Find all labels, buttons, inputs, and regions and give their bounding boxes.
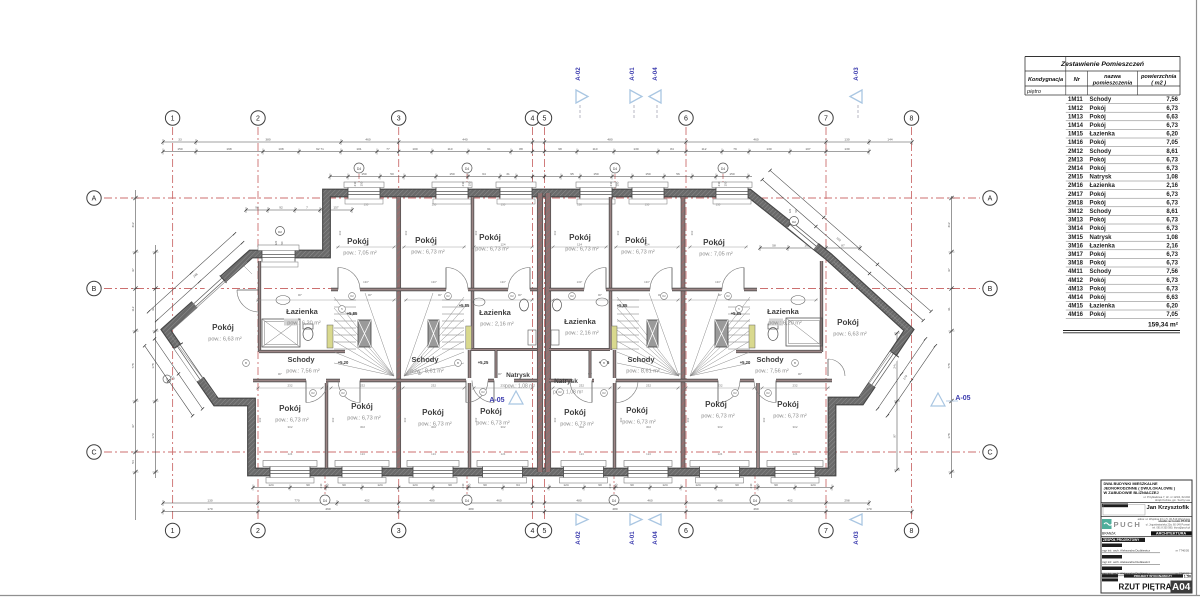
svg-text:150: 150 — [729, 172, 734, 176]
svg-text:150: 150 — [364, 203, 369, 207]
svg-text:90°: 90° — [598, 293, 602, 297]
svg-text:5: 5 — [543, 115, 547, 122]
svg-text:D2: D2 — [510, 294, 514, 298]
svg-text:A-05: A-05 — [489, 397, 504, 404]
svg-text:90°: 90° — [498, 372, 502, 376]
svg-text:Pokój: Pokój — [564, 408, 586, 417]
svg-text:144: 144 — [887, 137, 892, 141]
svg-text:D2: D2 — [558, 390, 562, 394]
svg-text:312: 312 — [131, 222, 135, 227]
svg-text:PUCH: PUCH — [1114, 520, 1142, 529]
svg-text:64: 64 — [482, 172, 486, 176]
svg-text:150: 150 — [593, 172, 598, 176]
svg-text:232: 232 — [579, 383, 584, 387]
svg-text:232: 232 — [287, 383, 292, 387]
svg-text:302: 302 — [553, 230, 557, 235]
svg-text:6,63: 6,63 — [1166, 295, 1178, 301]
svg-text:460: 460 — [496, 498, 501, 502]
svg-text:198: 198 — [226, 147, 231, 151]
svg-text:90°: 90° — [718, 293, 722, 297]
svg-text:6,73: 6,73 — [1166, 278, 1178, 284]
svg-text:Łazienka: Łazienka — [564, 317, 597, 326]
svg-text:778: 778 — [131, 363, 135, 368]
svg-text:90: 90 — [342, 483, 346, 487]
svg-text:Pokój: Pokój — [1090, 123, 1107, 129]
svg-text:Schody: Schody — [1090, 149, 1112, 155]
svg-text:402: 402 — [364, 498, 369, 502]
svg-text:Pokój: Pokój — [351, 402, 373, 411]
svg-text:380: 380 — [265, 137, 270, 141]
svg-text:Pokój: Pokój — [626, 406, 648, 415]
svg-text:pow.: 6,73 m²: pow.: 6,73 m² — [773, 414, 807, 420]
svg-text:150: 150 — [615, 483, 619, 488]
svg-text:77: 77 — [386, 147, 390, 151]
svg-text:6,73: 6,73 — [1166, 157, 1178, 163]
svg-text:B: B — [457, 361, 459, 365]
svg-text:6,73: 6,73 — [1166, 226, 1178, 232]
svg-text:A-04: A-04 — [652, 531, 659, 545]
svg-text:D4: D4 — [753, 499, 757, 503]
svg-text:7: 7 — [306, 205, 308, 209]
svg-text:Schody: Schody — [1090, 97, 1112, 103]
svg-text:BRANŻA:: BRANŻA: — [1102, 531, 1116, 536]
svg-text:98: 98 — [558, 147, 562, 151]
svg-text:130: 130 — [766, 147, 771, 151]
svg-text:6,20: 6,20 — [1166, 304, 1178, 310]
svg-text:+5,25: +5,25 — [478, 360, 489, 365]
svg-text:178: 178 — [151, 363, 155, 368]
svg-text:150: 150 — [449, 172, 454, 176]
svg-text:Łazienka: Łazienka — [479, 308, 512, 317]
svg-text:98: 98 — [255, 205, 259, 209]
svg-text:124: 124 — [288, 452, 293, 456]
svg-text:124: 124 — [268, 483, 273, 487]
svg-text:3: 3 — [397, 528, 401, 535]
svg-text:90°: 90° — [518, 293, 522, 297]
svg-text:480: 480 — [612, 507, 617, 511]
svg-text:Natrysk: Natrysk — [1090, 235, 1113, 241]
svg-text:90: 90 — [598, 483, 602, 487]
svg-text:D2: D2 — [350, 294, 354, 298]
svg-text:159,34 m²: 159,34 m² — [1148, 322, 1179, 329]
svg-text:pow.: 6,73 m²: pow.: 6,73 m² — [565, 247, 599, 253]
svg-text:1M11: 1M11 — [1068, 97, 1083, 103]
svg-text:pow.: 6,20 m²: pow.: 6,20 m² — [768, 321, 802, 327]
svg-text:170: 170 — [207, 507, 212, 511]
svg-text:Pokój: Pokój — [705, 400, 727, 409]
svg-text:460: 460 — [365, 137, 370, 141]
svg-text:150: 150 — [645, 203, 650, 207]
svg-text:7,56: 7,56 — [1166, 269, 1178, 275]
svg-text:pow.: 6,73 m²: pow.: 6,73 m² — [418, 422, 452, 428]
svg-text:Pokój: Pokój — [569, 233, 591, 242]
svg-text:Pokój: Pokój — [422, 408, 444, 417]
svg-text:pomieszczenia: pomieszczenia — [1092, 81, 1132, 87]
svg-text:3M15: 3M15 — [1068, 235, 1084, 241]
svg-text:92: 92 — [279, 205, 283, 209]
svg-text:210: 210 — [353, 181, 357, 186]
svg-text:Kondygnacja: Kondygnacja — [1028, 77, 1063, 83]
svg-text:3M18: 3M18 — [1068, 261, 1084, 267]
svg-text:97: 97 — [131, 424, 135, 428]
svg-text:pow.: 2,16 m²: pow.: 2,16 m² — [565, 331, 599, 337]
svg-text:92 71: 92 71 — [316, 147, 324, 151]
svg-text:1M16: 1M16 — [1068, 140, 1084, 146]
svg-text:D2: D2 — [341, 391, 345, 395]
svg-text:90°: 90° — [438, 293, 442, 297]
svg-text:A-01: A-01 — [629, 67, 636, 81]
svg-text:130°: 130° — [644, 280, 650, 284]
svg-text:232: 232 — [431, 383, 436, 387]
svg-text:Pokój: Pokój — [1090, 252, 1107, 258]
svg-text:7: 7 — [824, 115, 828, 122]
svg-text:210: 210 — [717, 181, 721, 186]
svg-text:+5,85: +5,85 — [617, 303, 628, 308]
svg-text:150: 150 — [616, 181, 620, 186]
svg-text:232: 232 — [792, 383, 797, 387]
svg-text:90°: 90° — [278, 372, 282, 376]
svg-text:232: 232 — [646, 383, 651, 387]
svg-text:6,73: 6,73 — [1166, 286, 1178, 292]
svg-text:D2: D2 — [570, 294, 574, 298]
svg-text:Schody: Schody — [287, 355, 315, 364]
svg-text:4: 4 — [531, 115, 535, 122]
svg-text:2M18: 2M18 — [1068, 200, 1084, 206]
svg-text:B: B — [603, 361, 605, 365]
svg-text:C: C — [91, 449, 96, 456]
svg-text:pow.: 6,63 m²: pow.: 6,63 m² — [208, 337, 242, 343]
svg-text:3M12: 3M12 — [1068, 209, 1084, 215]
svg-text:Jan Krzysztofik: Jan Krzysztofik — [1146, 505, 1189, 511]
svg-text:Natrysk: Natrysk — [1090, 175, 1113, 181]
svg-text:124: 124 — [646, 452, 651, 456]
svg-text:97: 97 — [892, 434, 896, 438]
svg-text:124: 124 — [718, 452, 723, 456]
svg-text:mgr inż. arch. Aleksandra Dudk: mgr inż. arch. Aleksandra Dudkiewicz — [1102, 548, 1151, 552]
svg-text:D2: D2 — [733, 391, 737, 395]
svg-text:90°: 90° — [678, 372, 682, 376]
svg-text:302: 302 — [360, 425, 365, 429]
svg-text:D4: D4 — [465, 167, 469, 171]
svg-text:480: 480 — [607, 137, 612, 141]
svg-text:7,56: 7,56 — [1166, 97, 1178, 103]
svg-text:2: 2 — [256, 528, 260, 535]
svg-text:Pokój: Pokój — [1090, 166, 1107, 172]
svg-text:124: 124 — [501, 452, 506, 456]
svg-text:+5,85: +5,85 — [347, 311, 358, 316]
svg-text:130: 130 — [844, 147, 849, 151]
svg-text:302: 302 — [287, 425, 292, 429]
svg-text:studio acronim PUCH: studio acronim PUCH — [1158, 519, 1191, 523]
svg-text:210: 210 — [749, 483, 753, 488]
svg-text:2M15: 2M15 — [1068, 175, 1084, 181]
svg-text:4M15: 4M15 — [1068, 304, 1084, 310]
svg-text:1,08: 1,08 — [1166, 175, 1178, 181]
svg-text:A: A — [92, 195, 97, 202]
svg-text:90°: 90° — [798, 372, 802, 376]
svg-text:110: 110 — [593, 147, 598, 151]
svg-text:6,73: 6,73 — [1166, 218, 1178, 224]
svg-text:90: 90 — [448, 483, 452, 487]
svg-text:95: 95 — [570, 172, 574, 176]
svg-text:302: 302 — [474, 230, 478, 235]
svg-text:302: 302 — [717, 425, 722, 429]
svg-text:A-03: A-03 — [853, 531, 860, 545]
svg-text:3M13: 3M13 — [1068, 218, 1084, 224]
svg-text:2,16: 2,16 — [1166, 243, 1178, 249]
svg-text:Łazienka: Łazienka — [1090, 304, 1116, 310]
svg-text:Pokój: Pokój — [212, 323, 234, 332]
svg-text:124: 124 — [793, 452, 798, 456]
svg-text:Pokój: Pokój — [279, 404, 301, 413]
svg-text:4: 4 — [531, 528, 535, 535]
svg-text:Schody: Schody — [756, 355, 784, 364]
svg-text:130: 130 — [633, 147, 638, 151]
svg-text:3: 3 — [397, 115, 401, 122]
svg-text:124: 124 — [695, 483, 700, 487]
svg-text:A: A — [988, 195, 993, 202]
svg-text:130°: 130° — [363, 280, 369, 284]
svg-text:56: 56 — [676, 172, 680, 176]
svg-text:440: 440 — [462, 137, 467, 141]
svg-text:2: 2 — [256, 115, 260, 122]
svg-text:5: 5 — [543, 528, 547, 535]
svg-text:130°: 130° — [715, 280, 721, 284]
svg-text:mgr inż. arch. Aleksandra Dudk: mgr inż. arch. Aleksandra Dudkiewicz — [1102, 560, 1151, 564]
svg-text:A-03: A-03 — [853, 67, 860, 81]
svg-text:2M14: 2M14 — [1068, 166, 1084, 172]
svg-text:1M13: 1M13 — [1068, 114, 1084, 120]
svg-text:D4: D4 — [721, 167, 725, 171]
svg-text:298: 298 — [844, 498, 849, 502]
svg-text:1,08: 1,08 — [1166, 235, 1178, 241]
svg-text:90: 90 — [483, 483, 487, 487]
svg-text:79: 79 — [733, 147, 737, 151]
svg-text:124: 124 — [563, 483, 568, 487]
svg-text:1M14: 1M14 — [1068, 123, 1084, 129]
svg-text:D4: D4 — [465, 499, 469, 503]
svg-text:210: 210 — [461, 483, 465, 488]
svg-text:460: 460 — [753, 507, 758, 511]
svg-text:150: 150 — [577, 203, 582, 207]
svg-text:302: 302 — [403, 417, 407, 422]
svg-text:91: 91 — [947, 307, 951, 311]
svg-text:124: 124 — [360, 452, 365, 456]
svg-text:6,73: 6,73 — [1166, 261, 1178, 267]
svg-text:112: 112 — [131, 306, 135, 311]
svg-text:460: 460 — [753, 137, 758, 141]
svg-text:6: 6 — [684, 115, 688, 122]
svg-text:pow.: 8,61 m²: pow.: 8,61 m² — [626, 369, 660, 375]
svg-text:2M17: 2M17 — [1068, 192, 1084, 198]
svg-text:130: 130 — [207, 498, 212, 502]
svg-text:powierzchnia: powierzchnia — [1140, 74, 1176, 80]
svg-text:302: 302 — [686, 417, 690, 422]
svg-text:480: 480 — [468, 507, 473, 511]
svg-text:107: 107 — [805, 147, 810, 151]
svg-text:B: B — [245, 361, 247, 365]
svg-text:100: 100 — [412, 147, 417, 151]
svg-text:pow.: 6,73 m²: pow.: 6,73 m² — [622, 420, 656, 426]
svg-text:3M16: 3M16 — [1068, 243, 1084, 249]
svg-text:Natrysk: Natrysk — [554, 378, 578, 385]
svg-text:D2: D2 — [446, 294, 450, 298]
svg-text:Pokój: Pokój — [625, 236, 647, 245]
svg-text:8,61: 8,61 — [1166, 209, 1178, 215]
svg-text:108: 108 — [278, 147, 283, 151]
svg-text:90°: 90° — [588, 372, 592, 376]
svg-text:D2: D2 — [726, 294, 730, 298]
svg-text:ZESPÓŁ PROJEKTOWY: ZESPÓŁ PROJEKTOWY — [1103, 537, 1140, 542]
svg-text:Pokój: Pokój — [1090, 140, 1107, 146]
svg-text:Zestawienie Pomieszczeń: Zestawienie Pomieszczeń — [1060, 61, 1144, 68]
svg-text:770: 770 — [294, 498, 299, 502]
svg-text:302: 302 — [690, 230, 694, 235]
svg-text:130°: 130° — [500, 280, 506, 284]
svg-text:pow.: 6,63 m²: pow.: 6,63 m² — [833, 332, 867, 338]
svg-text:Pokój: Pokój — [1090, 286, 1107, 292]
svg-text:pow.: 7,56 m²: pow.: 7,56 m² — [755, 369, 789, 375]
svg-text:302: 302 — [331, 417, 335, 422]
svg-text:Schody: Schody — [1090, 269, 1112, 275]
svg-text:pow.: 7,05 m²: pow.: 7,05 m² — [699, 252, 733, 258]
svg-text:54: 54 — [131, 460, 135, 464]
svg-text:4M12: 4M12 — [1068, 278, 1084, 284]
svg-text:124: 124 — [431, 452, 436, 456]
svg-text:1M12: 1M12 — [1068, 106, 1084, 112]
svg-text:W ZABUDOWIE BLIŹNIACZEJ: W ZABUDOWIE BLIŹNIACZEJ — [1104, 490, 1159, 495]
svg-text:2M13: 2M13 — [1068, 157, 1084, 163]
svg-text:Pokój: Pokój — [1090, 218, 1107, 224]
svg-text:B: B — [794, 361, 796, 365]
svg-text:97: 97 — [131, 268, 135, 272]
svg-text:210: 210 — [461, 181, 465, 186]
svg-text:Pokój: Pokój — [703, 238, 725, 247]
svg-text:124: 124 — [377, 483, 382, 487]
svg-text:150: 150 — [177, 147, 182, 151]
svg-text:Pokój: Pokój — [1090, 192, 1107, 198]
svg-text:101: 101 — [356, 147, 361, 151]
svg-text:1: 1 — [171, 115, 175, 122]
svg-text:150: 150 — [501, 203, 506, 207]
svg-text:+5,20: +5,20 — [740, 360, 751, 365]
svg-text:3M14: 3M14 — [1068, 226, 1084, 232]
svg-text:232: 232 — [360, 383, 365, 387]
svg-text:124: 124 — [810, 483, 815, 487]
svg-text:A04: A04 — [1172, 582, 1191, 593]
svg-text:Pokój: Pokój — [480, 407, 502, 416]
svg-text:4M14: 4M14 — [1068, 295, 1084, 301]
svg-text:Pokój: Pokój — [1090, 106, 1107, 112]
svg-text:97: 97 — [947, 268, 951, 272]
svg-text:124: 124 — [579, 452, 584, 456]
svg-text:Łazienka: Łazienka — [767, 307, 800, 316]
svg-text:150: 150 — [468, 181, 472, 186]
svg-text:D2: D2 — [278, 230, 282, 234]
svg-text:A-02: A-02 — [575, 531, 582, 545]
svg-text:Pokój: Pokój — [1090, 226, 1107, 232]
svg-text:Łazienka: Łazienka — [1090, 132, 1116, 138]
svg-text:RZUT PIĘTRA: RZUT PIĘTRA — [1119, 583, 1172, 592]
svg-text:nazwa: nazwa — [1104, 74, 1121, 80]
svg-text:D2: D2 — [311, 391, 315, 395]
svg-text:4M13: 4M13 — [1068, 286, 1084, 292]
svg-text:2,16: 2,16 — [1166, 183, 1178, 189]
svg-text:D4: D4 — [613, 167, 617, 171]
svg-text:312: 312 — [947, 222, 951, 227]
svg-text:Łazienka: Łazienka — [286, 307, 319, 316]
svg-text:D2: D2 — [481, 390, 485, 394]
svg-text:480: 480 — [429, 498, 434, 502]
svg-text:179: 179 — [151, 433, 155, 438]
svg-text:150: 150 — [724, 181, 728, 186]
svg-text:D2: D2 — [662, 294, 666, 298]
svg-text:Pokój: Pokój — [837, 318, 859, 327]
svg-text:Natrysk: Natrysk — [506, 372, 530, 379]
svg-text:778: 778 — [947, 363, 951, 368]
svg-text:Nr: Nr — [1074, 77, 1081, 83]
svg-text:33: 33 — [178, 137, 182, 141]
svg-text:pow.: 6,73 m²: pow.: 6,73 m² — [621, 250, 655, 256]
svg-text:8: 8 — [910, 115, 914, 122]
svg-text:C: C — [987, 449, 992, 456]
svg-text:Pokój: Pokój — [1090, 157, 1107, 163]
svg-text:90: 90 — [735, 483, 739, 487]
svg-text:120: 120 — [788, 208, 792, 213]
svg-text:64: 64 — [516, 483, 520, 487]
svg-text:pow.: 2,16 m²: pow.: 2,16 m² — [480, 322, 514, 328]
svg-text:tel. 061 8 330 580, biuro@puch: tel. 061 8 330 580, biuro@puch.pl — [1152, 527, 1190, 530]
svg-text:8,61: 8,61 — [1166, 149, 1178, 155]
svg-text:B: B — [988, 286, 993, 293]
svg-text:D4: D4 — [357, 167, 361, 171]
svg-text:232: 232 — [717, 383, 722, 387]
svg-text:4M16: 4M16 — [1068, 312, 1084, 318]
svg-text:3M17: 3M17 — [1068, 252, 1084, 258]
svg-text:Pokój: Pokój — [1090, 200, 1107, 206]
svg-text:112: 112 — [702, 147, 707, 151]
svg-text:150: 150 — [468, 483, 472, 488]
svg-text:460: 460 — [647, 498, 652, 502]
svg-text:90°: 90° — [298, 293, 302, 297]
svg-text:150: 150 — [326, 483, 330, 488]
svg-text:Schody: Schody — [627, 355, 655, 364]
svg-text:302: 302 — [792, 425, 797, 429]
svg-text:130°: 130° — [431, 280, 437, 284]
svg-text:Pokój: Pokój — [1090, 295, 1107, 301]
svg-text:302: 302 — [762, 417, 766, 422]
svg-text:pow.: 6,73 m²: pow.: 6,73 m² — [475, 247, 509, 253]
svg-text:pow.: 7,05 m²: pow.: 7,05 m² — [343, 251, 377, 257]
svg-text:+5,85: +5,85 — [459, 303, 470, 308]
svg-text:302: 302 — [553, 417, 557, 422]
svg-text:Pokój: Pokój — [777, 400, 799, 409]
svg-text:D2: D2 — [766, 391, 770, 395]
svg-text:pow.: 6,73 m²: pow.: 6,73 m² — [560, 422, 594, 428]
svg-text:150: 150 — [361, 172, 366, 176]
svg-text:90: 90 — [306, 483, 310, 487]
svg-text:302: 302 — [404, 230, 408, 235]
svg-text:Pokój: Pokój — [1090, 261, 1107, 267]
svg-text:obręb Kuźnia, gm. Suchy Las: obręb Kuźnia, gm. Suchy Las — [1155, 498, 1191, 502]
svg-text:B: B — [92, 286, 97, 293]
svg-text:Pokój: Pokój — [1090, 114, 1107, 120]
svg-text:61: 61 — [487, 147, 491, 151]
svg-text:1M15: 1M15 — [1068, 132, 1084, 138]
svg-text:Pokój: Pokój — [1090, 278, 1107, 284]
svg-text:7,05: 7,05 — [1166, 312, 1178, 318]
svg-text:pow.: 6,73 m²: pow.: 6,73 m² — [701, 414, 735, 420]
